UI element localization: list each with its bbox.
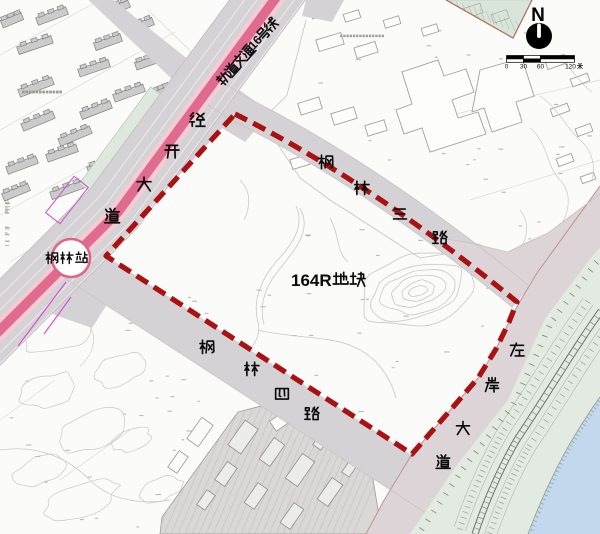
svg-text:30: 30 [520, 64, 528, 71]
svg-text:60: 60 [537, 64, 545, 71]
svg-text:0: 0 [505, 64, 509, 71]
svg-text:164R: 164R [291, 271, 332, 290]
svg-text:N: N [531, 5, 545, 26]
svg-text:120: 120 [565, 64, 576, 71]
